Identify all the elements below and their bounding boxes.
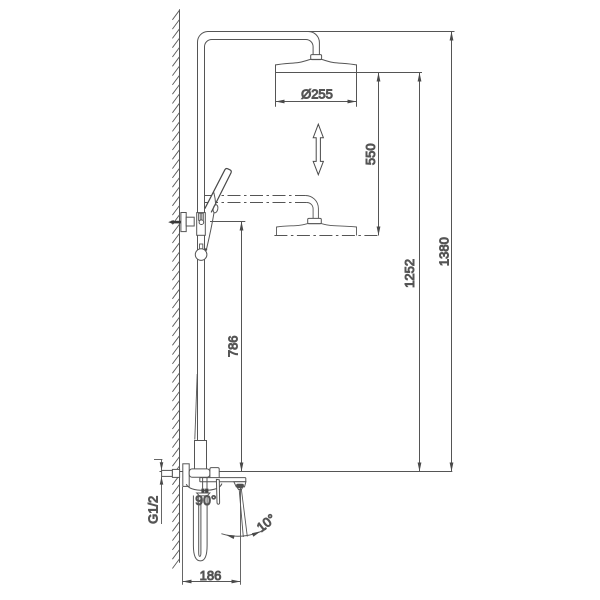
svg-text:1252: 1252 [402,259,417,288]
svg-text:1380: 1380 [437,237,452,266]
svg-text:10°: 10° [254,511,279,535]
svg-text:186: 186 [200,568,222,583]
svg-text:786: 786 [226,335,241,357]
svg-text:550: 550 [363,143,378,165]
svg-text:Ø255: Ø255 [301,86,333,101]
svg-text:G1/2: G1/2 [145,496,160,524]
svg-text:90°: 90° [195,492,216,508]
